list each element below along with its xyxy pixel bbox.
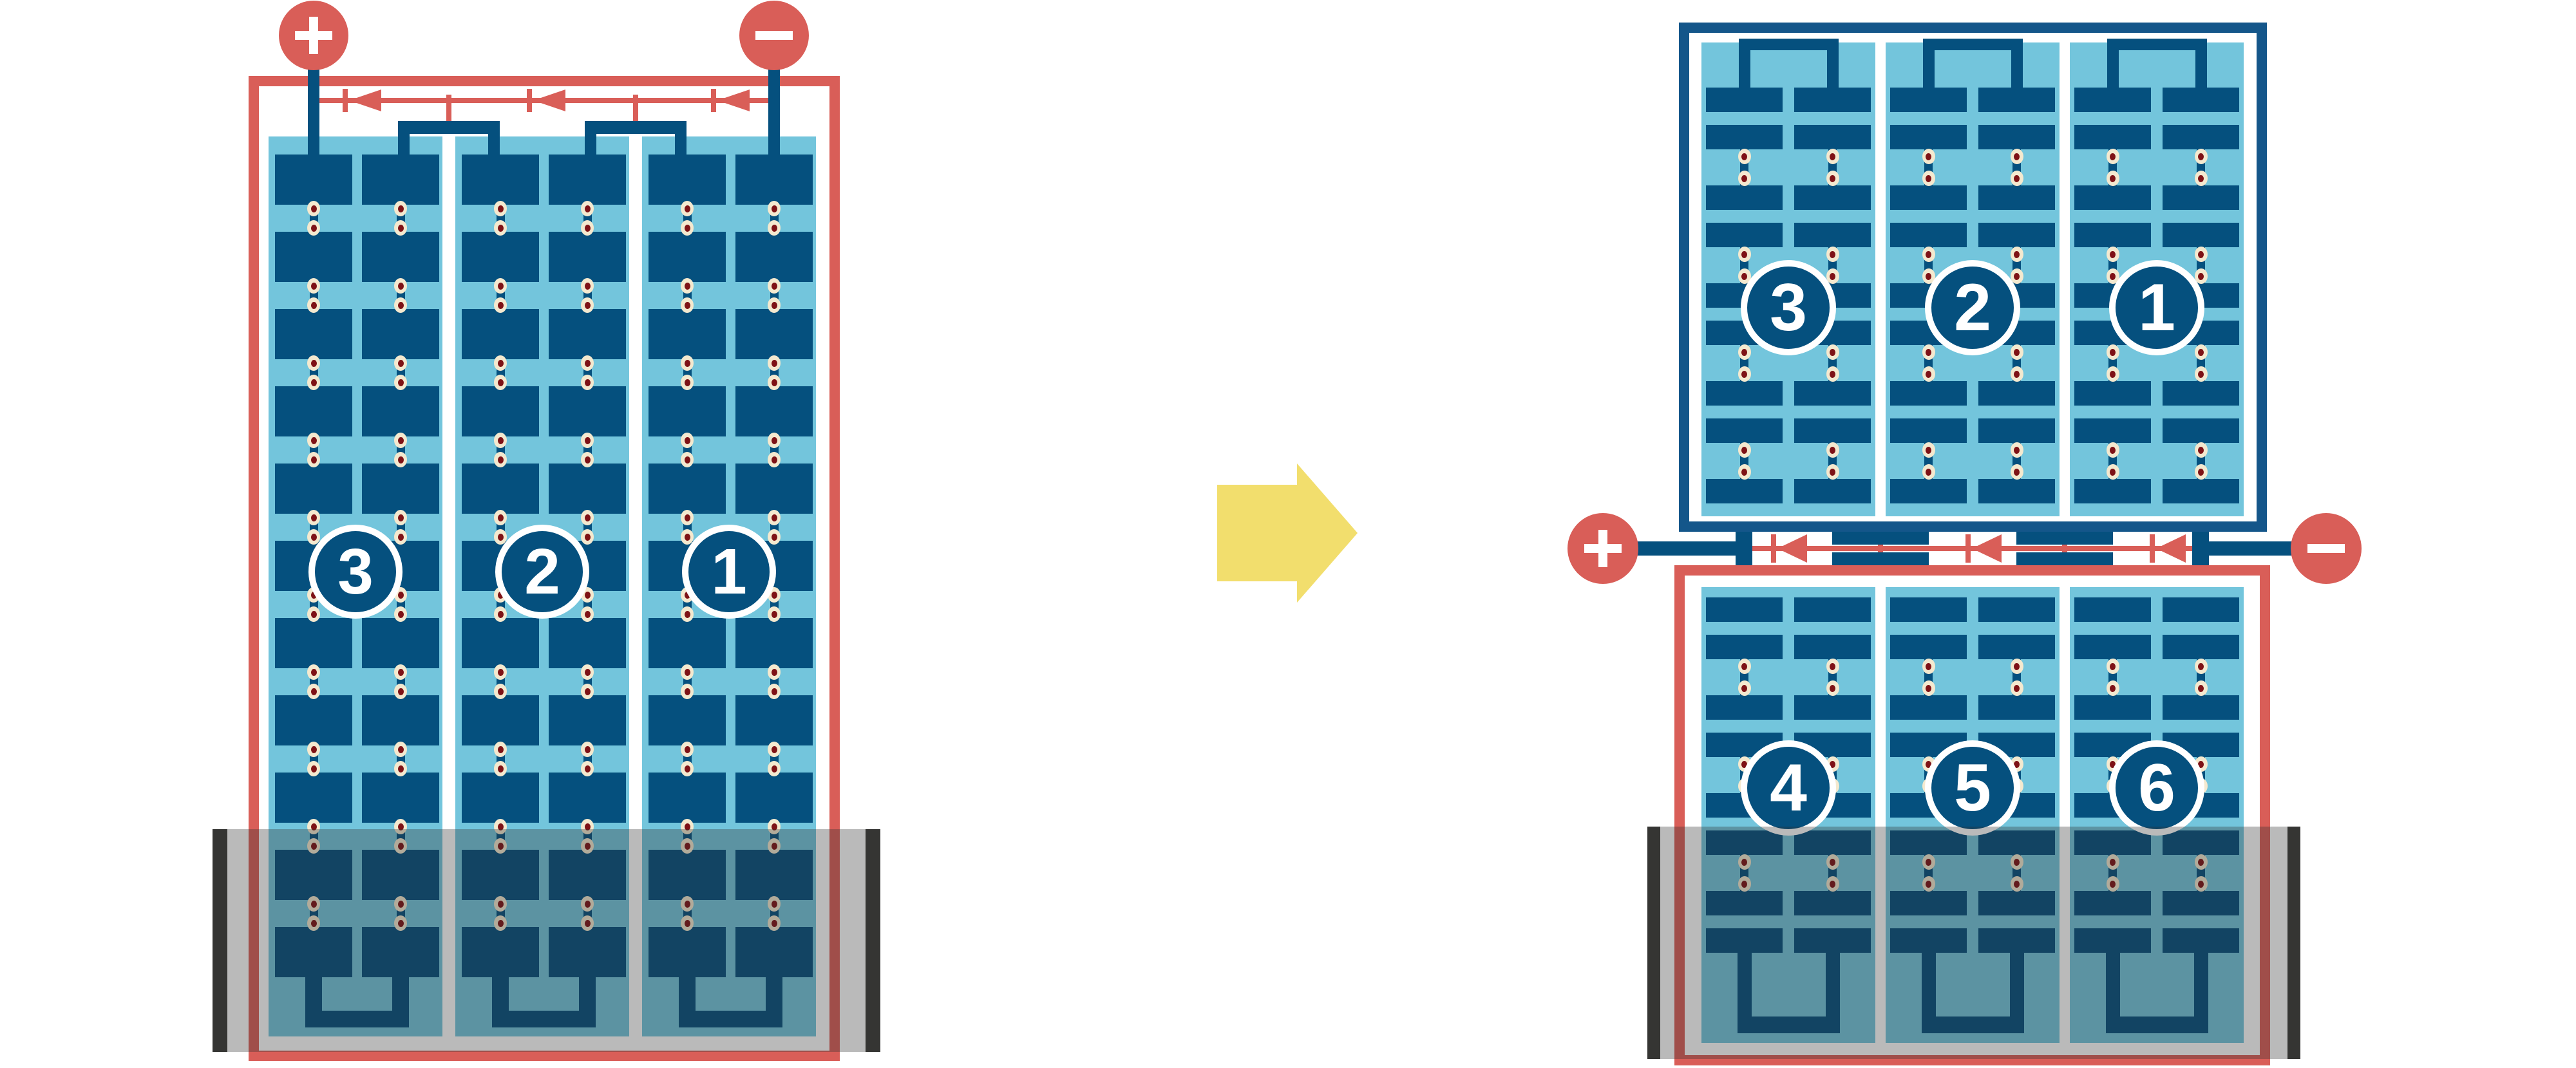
plate-connector-dot-center <box>398 205 404 212</box>
plate-connector-dot <box>768 278 781 294</box>
plate-connector-dot-center <box>398 746 404 753</box>
plate-connector-dot-center <box>498 765 504 773</box>
plate-connector-dot <box>2107 680 2119 696</box>
plate-connector-dot-center <box>2198 685 2204 692</box>
plate-connector-dot-center <box>2198 175 2204 182</box>
negative-terminal <box>739 1 809 70</box>
negative-terminal <box>2291 513 2362 584</box>
diode-arrow-icon <box>1972 534 2002 563</box>
plate-connector-dot-center <box>772 611 777 618</box>
top-busbar-bar <box>398 121 500 134</box>
plate-connector-dot <box>1826 366 1839 382</box>
plate-connector-dot-center <box>772 765 777 773</box>
cell-number-circle: 1 <box>682 525 776 619</box>
plate-connector-dot <box>394 664 407 680</box>
top-busbar-bar <box>585 121 687 134</box>
plate-connector-dot-center <box>1926 349 1931 356</box>
diode-tick <box>711 89 716 112</box>
diode-tick <box>343 89 348 112</box>
plate-connector-dot-center <box>772 437 777 444</box>
plate-connector-dot-center <box>585 534 591 541</box>
plate-connector-dot <box>307 220 320 236</box>
plus-icon <box>1598 530 1607 567</box>
plate-connector-dot-center <box>498 283 504 290</box>
plate-connector-dot <box>1922 344 1935 360</box>
plate-connector-dot <box>581 664 594 680</box>
plate-connector-dot-center <box>1830 685 1835 692</box>
plate-connector-dot-center <box>685 534 690 541</box>
plate-connector-dot <box>394 529 407 545</box>
plate-connector-dot <box>681 742 694 757</box>
plate-connector-dot-center <box>398 379 404 386</box>
cell-number: 2 <box>524 535 560 609</box>
plate-connector-dot <box>307 375 320 390</box>
plate-connector-dot-center <box>2014 447 2020 454</box>
plate-connector-dot <box>494 201 507 216</box>
plate-connector-dot <box>681 220 694 236</box>
plate-connector-dot <box>394 452 407 467</box>
plate-connector-dot <box>681 355 694 371</box>
plate-connector-dot-center <box>772 225 777 232</box>
cell-number-circle: 6 <box>2109 740 2204 836</box>
diode-arrow-icon <box>717 89 750 111</box>
plate-connector-dot-center <box>685 746 690 753</box>
plate-connector-dot-center <box>1830 175 1835 182</box>
plate-connector-dot-center <box>311 669 317 676</box>
plate-connector-dot <box>768 742 781 757</box>
plate-connector-dot-center <box>1741 663 1747 670</box>
plate-connector-dot <box>681 761 694 776</box>
plate-connector-dot-center <box>498 205 504 212</box>
plate-connector-dot-center <box>772 746 777 753</box>
plate-connector-dot <box>1826 247 1839 262</box>
plate-connector-dot-center <box>311 688 317 695</box>
plate-connector-dot <box>307 201 320 216</box>
module-link-stub <box>2016 552 2113 565</box>
minus-icon <box>755 31 793 40</box>
top-pi-busbar-leg <box>1827 50 1839 90</box>
plate-connector-dot <box>581 684 594 699</box>
plate-connector-dot-center <box>398 225 404 232</box>
minus-icon <box>2307 544 2345 553</box>
plate-connector-dot <box>681 433 694 448</box>
plate-connector-dot <box>494 297 507 313</box>
plate-connector-dot-center <box>1830 663 1835 670</box>
diode-arrow-icon <box>1777 534 1807 563</box>
plate-connector-dot <box>494 355 507 371</box>
plate-connector-dot <box>394 761 407 776</box>
plate-connector-dot <box>2195 247 2208 262</box>
plate-connector-dot-center <box>585 302 591 309</box>
plate-connector-dot <box>681 684 694 699</box>
plate-connector-dot-center <box>685 360 690 367</box>
top-busbar-leg <box>398 133 410 165</box>
positive-terminal-bar <box>1636 541 1744 556</box>
plate-connector-dot-center <box>1830 469 1835 476</box>
plate-connector-dot-center <box>2110 175 2116 182</box>
plate-connector-dot <box>581 278 594 294</box>
plate-connector-dot-center <box>2014 349 2020 356</box>
plate-connector-dot-center <box>1741 251 1747 258</box>
plate-connector-dot <box>581 375 594 390</box>
plate-connector-dot-center <box>685 225 690 232</box>
plate-connector-dot-center <box>1830 273 1835 280</box>
plate-connector-dot-center <box>498 225 504 232</box>
plate-connector-dot-center <box>398 611 404 618</box>
plate-connector-dot-center <box>2110 663 2116 670</box>
plate-connector-dot-center <box>2014 469 2020 476</box>
plate-connector-dot <box>2195 366 2208 382</box>
plate-connector-dot-center <box>1926 663 1931 670</box>
plate-connector-dot <box>307 664 320 680</box>
plate-connector-dot-center <box>311 379 317 386</box>
plate-connector-dot-center <box>311 534 317 541</box>
plate-connector-dot-center <box>1926 175 1931 182</box>
plate-connector-dot <box>307 761 320 776</box>
plate-connector-dot <box>768 684 781 699</box>
cell-number: 2 <box>1954 270 1991 346</box>
plate-connector-dot <box>681 664 694 680</box>
plate-connector-dot <box>768 220 781 236</box>
plate-connector-dot-center <box>311 611 317 618</box>
plate-connector-dot-center <box>1741 447 1747 454</box>
module-link-stub <box>1832 552 1929 565</box>
diode-arrow-icon <box>2156 534 2186 563</box>
plate-connector-dot <box>394 433 407 448</box>
plate-connector-dot-center <box>772 688 777 695</box>
plate-connector-dot <box>1738 680 1751 696</box>
plate-connector-dot <box>1922 149 1935 164</box>
plate-connector-dot <box>1738 659 1751 674</box>
plate-connector-dot <box>1922 442 1935 458</box>
plate-connector-dot <box>1738 366 1751 382</box>
plate-connector-dot <box>494 742 507 757</box>
plate-connector-dot-center <box>585 225 591 232</box>
plate-connector-dot <box>494 375 507 390</box>
plate-connector-dot <box>494 684 507 699</box>
plate-connector-dot <box>394 375 407 390</box>
plate-connector-dot <box>394 220 407 236</box>
plate-connector-dot-center <box>1926 273 1931 280</box>
plate-connector-dot-center <box>398 360 404 367</box>
plate-connector-dot <box>768 529 781 545</box>
plate-connector-dot <box>581 606 594 622</box>
plate-connector-dot-center <box>685 283 690 290</box>
plate-connector-dot <box>2107 442 2119 458</box>
plate-connector-dot <box>681 201 694 216</box>
plate-connector-dot-center <box>311 456 317 464</box>
plate-connector-dot-center <box>772 205 777 212</box>
plate-connector-dot-center <box>685 205 690 212</box>
plate-connector-dot <box>2107 247 2119 262</box>
plate-connector-dot-center <box>772 283 777 290</box>
plate-connector-dot-center <box>398 669 404 676</box>
plate-connector-dot-center <box>2198 153 2204 160</box>
plate-connector-dot-center <box>685 765 690 773</box>
plate-connector-dot <box>494 220 507 236</box>
plate-connector-dot-center <box>772 456 777 464</box>
plate-connector-dot-center <box>311 514 317 521</box>
plate-connector-dot-center <box>1926 371 1931 378</box>
plate-connector-dot-center <box>1830 153 1835 160</box>
plate-connector-dot <box>494 433 507 448</box>
plate-connector-dot <box>1922 680 1935 696</box>
plate-connector-dot <box>581 452 594 467</box>
cell-number: 5 <box>1954 750 1991 827</box>
plate-connector-dot <box>2011 171 2023 186</box>
diode-tick <box>1965 534 1971 563</box>
plate-connector-dot <box>1826 171 1839 186</box>
plate-connector-dot-center <box>2014 175 2020 182</box>
plate-connector-dot-center <box>585 360 591 367</box>
diode-arrow-icon <box>349 89 381 111</box>
plate-connector-dot-center <box>585 688 591 695</box>
plate-connector-dot-center <box>2198 663 2204 670</box>
cell-number: 3 <box>337 535 374 609</box>
plate-connector-dot <box>1738 171 1751 186</box>
plate-connector-dot <box>2011 680 2023 696</box>
plate-connector-dot <box>1922 247 1935 262</box>
plate-connector-dot-center <box>498 456 504 464</box>
top-pi-busbar-leg <box>2195 50 2207 90</box>
plate-connector-dot <box>2011 247 2023 262</box>
plate-connector-dot <box>394 278 407 294</box>
plate-connector-dot-center <box>772 534 777 541</box>
plate-connector-dot-center <box>398 592 404 599</box>
plate-connector-dot-center <box>398 765 404 773</box>
plate-connector-dot-center <box>498 688 504 695</box>
plate-connector-dot-center <box>685 302 690 309</box>
plate-connector-dot <box>394 201 407 216</box>
plate-connector-dot <box>307 297 320 313</box>
plate-connector-dot <box>1738 442 1751 458</box>
positive-terminal <box>279 1 348 70</box>
plate-connector-dot <box>1826 464 1839 480</box>
plate-connector-dot-center <box>498 360 504 367</box>
plate-connector-dot-center <box>585 283 591 290</box>
plate-connector-dot-center <box>2014 251 2020 258</box>
plate-connector-dot-center <box>772 669 777 676</box>
plate-connector-dot <box>1922 366 1935 382</box>
cell-number-circle: 3 <box>308 525 402 619</box>
plate-connector-dot <box>2011 344 2023 360</box>
plate-connector-dot <box>1826 680 1839 696</box>
plate-connector-dot-center <box>772 360 777 367</box>
plate-connector-dot-center <box>2198 349 2204 356</box>
cell-number-circle: 4 <box>1741 740 1836 836</box>
plate-connector-dot <box>581 529 594 545</box>
plate-connector-dot <box>681 606 694 622</box>
top-busbar-leg <box>488 133 500 165</box>
plate-connector-dot <box>394 684 407 699</box>
plate-connector-dot-center <box>398 456 404 464</box>
top-pi-busbar-leg <box>2107 50 2119 90</box>
plate-connector-dot-center <box>498 534 504 541</box>
tray-overlay <box>1647 827 2300 1059</box>
plate-connector-dot-center <box>1830 371 1835 378</box>
cell-number: 4 <box>1770 750 1807 827</box>
plate-connector-dot <box>494 606 507 622</box>
plate-connector-dot <box>1826 442 1839 458</box>
plate-connector-dot <box>2107 464 2119 480</box>
plate-connector-dot <box>307 355 320 371</box>
plate-connector-dot-center <box>1741 685 1747 692</box>
battery-connection-diagram: 3 2 1 <box>0 0 2576 1068</box>
plate-connector-dot-center <box>498 611 504 618</box>
plate-connector-dot-center <box>2110 349 2116 356</box>
plate-connector-dot <box>394 355 407 371</box>
plate-connector-dot <box>2011 149 2023 164</box>
diode-arrow-icon <box>533 89 565 111</box>
plate-connector-dot <box>2011 442 2023 458</box>
arrow-body <box>1217 485 1298 581</box>
plate-connector-dot <box>581 433 594 448</box>
plate-connector-dot <box>307 433 320 448</box>
plate-connector-dot <box>681 375 694 390</box>
plate-connector-dot-center <box>685 688 690 695</box>
plate-connector-dot <box>494 452 507 467</box>
plate-connector-dot-center <box>498 379 504 386</box>
plate-connector-dot <box>394 510 407 525</box>
plate-connector-dot <box>307 278 320 294</box>
plate-connector-dot <box>681 510 694 525</box>
plate-connector-dot-center <box>772 302 777 309</box>
plate-connector-dot-center <box>498 514 504 521</box>
plate-connector-dot-center <box>685 514 690 521</box>
plate-connector-dot <box>581 742 594 757</box>
plate-connector-dot <box>307 510 320 525</box>
plate-connector-dot <box>768 375 781 390</box>
plate-connector-dot <box>768 510 781 525</box>
plate-connector-dot <box>394 606 407 622</box>
plate-connector-dot <box>1826 149 1839 164</box>
plate-connector-dot-center <box>1926 685 1931 692</box>
plate-connector-dot-center <box>1741 153 1747 160</box>
plate-connector-dot-center <box>2198 273 2204 280</box>
plate-connector-dot-center <box>2014 273 2020 280</box>
plate-connector-dot <box>2011 659 2023 674</box>
plate-connector-dot-center <box>1830 447 1835 454</box>
plate-connector-dot-center <box>772 379 777 386</box>
plate-connector-dot-center <box>585 437 591 444</box>
plate-connector-dot-center <box>498 746 504 753</box>
plate-connector-dot-center <box>398 688 404 695</box>
plate-connector-dot <box>1922 464 1935 480</box>
plate-connector-dot-center <box>585 379 591 386</box>
top-pi-busbar-leg <box>1739 50 1750 90</box>
plate-connector-dot-center <box>2014 663 2020 670</box>
plate-connector-dot-center <box>585 514 591 521</box>
plate-connector-dot-center <box>498 302 504 309</box>
plate-connector-dot-center <box>1741 175 1747 182</box>
plate-connector-dot <box>681 297 694 313</box>
plate-connector-dot <box>2195 149 2208 164</box>
plate-connector-dot-center <box>1741 349 1747 356</box>
plate-connector-dot <box>2107 171 2119 186</box>
plate-connector-dot-center <box>2198 371 2204 378</box>
plate-connector-dot-center <box>1741 469 1747 476</box>
plate-connector-dot <box>2107 366 2119 382</box>
top-pi-busbar-leg <box>1923 50 1935 90</box>
plate-connector-dot <box>768 355 781 371</box>
plate-connector-dot-center <box>2198 251 2204 258</box>
cell-number-circle: 1 <box>2109 260 2204 355</box>
plate-connector-dot-center <box>585 669 591 676</box>
plate-connector-dot-center <box>311 765 317 773</box>
plate-connector-dot <box>1738 464 1751 480</box>
plate-connector-dot-center <box>2110 447 2116 454</box>
plate-connector-dot-center <box>498 669 504 676</box>
plate-connector-dot <box>2195 464 2208 480</box>
tray-overlay <box>213 829 880 1052</box>
plate-connector-dot-center <box>1926 469 1931 476</box>
plate-connector-dot-center <box>2110 371 2116 378</box>
plate-connector-dot-center <box>311 283 317 290</box>
plate-connector-dot <box>2107 149 2119 164</box>
plate-connector-dot <box>1826 344 1839 360</box>
plate-connector-dot <box>2195 680 2208 696</box>
plate-connector-dot <box>1826 659 1839 674</box>
plate-connector-dot-center <box>398 283 404 290</box>
plate-connector-dot <box>394 297 407 313</box>
plate-connector-dot <box>768 761 781 776</box>
plate-connector-dot <box>581 761 594 776</box>
plate-connector-dot-center <box>2198 469 2204 476</box>
plate-connector-dot-center <box>585 592 591 599</box>
cell-number: 1 <box>2138 270 2175 346</box>
cell-number-circle: 5 <box>1925 740 2020 836</box>
plate-connector-dot <box>307 452 320 467</box>
diode-tick <box>2150 534 2155 563</box>
plate-connector-dot-center <box>1926 153 1931 160</box>
plate-connector-dot-center <box>2198 447 2204 454</box>
plate-connector-dot-center <box>685 669 690 676</box>
plate-connector-dot-center <box>2110 273 2116 280</box>
plate-connector-dot <box>581 355 594 371</box>
plate-connector-dot <box>2195 659 2208 674</box>
top-pi-busbar-leg <box>2011 50 2023 90</box>
plate-connector-dot-center <box>1741 273 1747 280</box>
plate-connector-dot-center <box>585 456 591 464</box>
plate-connector-dot-center <box>2014 685 2020 692</box>
plate-connector-dot <box>681 452 694 467</box>
cell-number: 6 <box>2138 750 2175 827</box>
plate-connector-dot-center <box>2110 685 2116 692</box>
plate-connector-dot <box>307 742 320 757</box>
plate-connector-dot-center <box>311 746 317 753</box>
plate-connector-dot-center <box>1926 251 1931 258</box>
plate-connector-dot-center <box>311 360 317 367</box>
plate-connector-dot-center <box>2014 153 2020 160</box>
plate-connector-dot <box>1922 171 1935 186</box>
plate-connector-dot <box>581 220 594 236</box>
top-busbar-leg <box>585 133 596 165</box>
plate-connector-dot-center <box>685 379 690 386</box>
plate-connector-dot-center <box>772 592 777 599</box>
plate-connector-dot <box>494 761 507 776</box>
plate-connector-dot-center <box>2014 371 2020 378</box>
plate-connector-dot <box>2107 659 2119 674</box>
plate-connector-dot <box>1922 659 1935 674</box>
plate-connector-dot <box>768 297 781 313</box>
cell-number-circle: 3 <box>1741 260 1836 355</box>
plate-connector-dot <box>494 664 507 680</box>
plate-connector-dot-center <box>498 437 504 444</box>
positive-terminal <box>1567 513 1638 584</box>
plate-connector-dot <box>2011 366 2023 382</box>
plate-connector-dot <box>2195 442 2208 458</box>
plate-connector-dot-center <box>2110 251 2116 258</box>
